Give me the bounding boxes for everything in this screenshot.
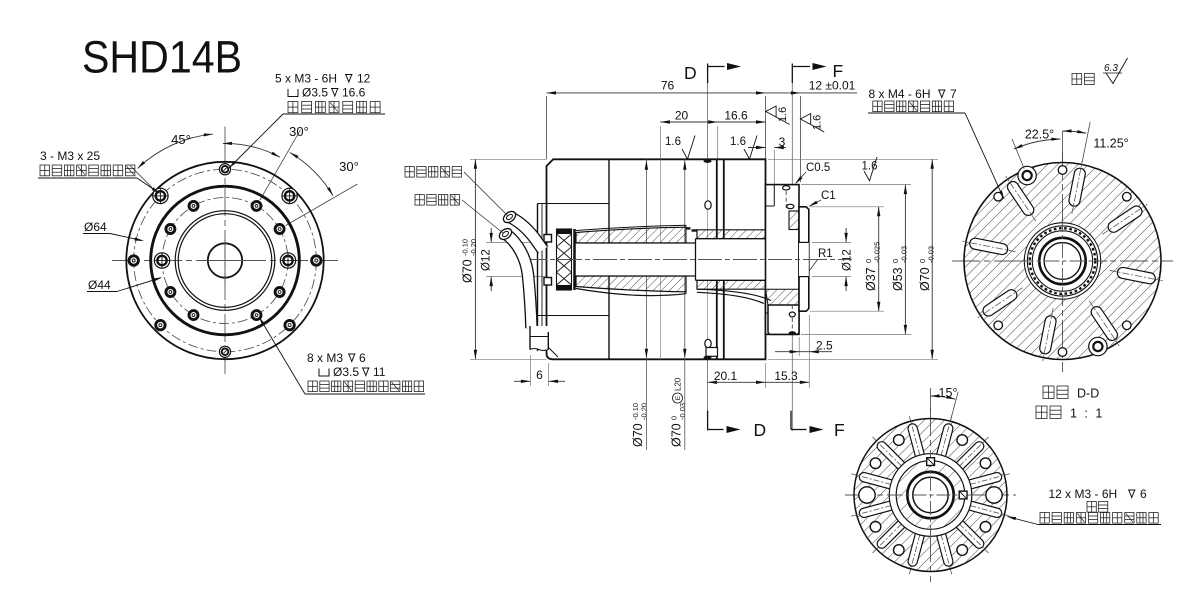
svg-text:76: 76 (661, 79, 675, 93)
svg-text:F: F (833, 61, 844, 81)
svg-text:8 x M4 - 6H: 8 x M4 - 6H (869, 87, 931, 101)
svg-text:6: 6 (536, 368, 543, 382)
svg-text:1.6: 1.6 (812, 115, 824, 130)
svg-text:Ø64: Ø64 (84, 220, 107, 234)
svg-text:3 - M3 x 25: 3 - M3 x 25 (40, 149, 100, 163)
svg-text:Ø12: Ø12 (481, 249, 493, 271)
svg-text:-0.03: -0.03 (678, 403, 687, 420)
svg-text:5 x M3 - 6H: 5 x M3 - 6H (275, 72, 337, 86)
svg-text:7: 7 (950, 87, 957, 101)
svg-text:-0.025: -0.025 (873, 242, 882, 263)
svg-text:F: F (834, 420, 845, 440)
svg-text:Ø70: Ø70 (918, 267, 932, 291)
svg-text:D: D (754, 420, 767, 440)
svg-text:-0.03: -0.03 (926, 246, 935, 263)
svg-text:SHD14B: SHD14B (82, 32, 242, 83)
svg-text:1.6: 1.6 (730, 136, 746, 148)
svg-text:E: E (675, 395, 682, 400)
svg-text:11: 11 (373, 365, 386, 379)
svg-text:Ø70: Ø70 (670, 423, 684, 447)
svg-text:Ø70: Ø70 (461, 259, 475, 283)
svg-text:Ø3.5: Ø3.5 (302, 86, 328, 100)
svg-text:D: D (684, 63, 697, 83)
svg-text:Ø12: Ø12 (842, 249, 854, 271)
svg-text:1.6: 1.6 (665, 136, 681, 148)
svg-text:L20: L20 (674, 377, 683, 391)
svg-text:12: 12 (357, 72, 371, 86)
svg-text:Ø37: Ø37 (864, 267, 878, 291)
svg-text:D-D: D-D (1077, 387, 1099, 401)
svg-text:Ø70: Ø70 (631, 423, 645, 447)
svg-text:16.6: 16.6 (724, 109, 748, 123)
svg-text:Ø3.5: Ø3.5 (333, 365, 359, 379)
svg-text:-0.20: -0.20 (640, 403, 649, 420)
svg-text:R1: R1 (818, 248, 833, 260)
svg-text:2.5: 2.5 (816, 339, 833, 353)
svg-text:12 x M3 - 6H: 12 x M3 - 6H (1049, 487, 1118, 501)
svg-text:22.5°: 22.5° (1025, 128, 1054, 142)
svg-text:Ø44: Ø44 (88, 278, 111, 292)
svg-text:30°: 30° (289, 124, 309, 139)
svg-text:15.3: 15.3 (774, 369, 798, 383)
svg-text:20.1: 20.1 (714, 369, 738, 383)
svg-text:11.25°: 11.25° (1093, 137, 1128, 151)
svg-text:6: 6 (359, 351, 366, 365)
svg-text:C0.5: C0.5 (806, 162, 830, 174)
svg-text:8 x M3: 8 x M3 (307, 351, 343, 365)
svg-text:6: 6 (1140, 487, 1147, 501)
svg-text:30°: 30° (339, 159, 359, 174)
svg-text:-0.03: -0.03 (900, 246, 909, 263)
svg-text:20: 20 (675, 109, 689, 123)
svg-text:15°: 15° (939, 386, 958, 400)
svg-text:1.6: 1.6 (777, 107, 789, 122)
svg-text:C1: C1 (821, 190, 836, 202)
svg-text:-0.20: -0.20 (469, 239, 478, 256)
svg-text:Ø53: Ø53 (891, 267, 905, 291)
svg-text:16.6: 16.6 (342, 86, 366, 100)
svg-text:45°: 45° (171, 132, 191, 147)
svg-text:6.3: 6.3 (1104, 63, 1118, 74)
svg-text:3: 3 (779, 135, 786, 149)
svg-text:1 : 1: 1 : 1 (1070, 407, 1104, 421)
